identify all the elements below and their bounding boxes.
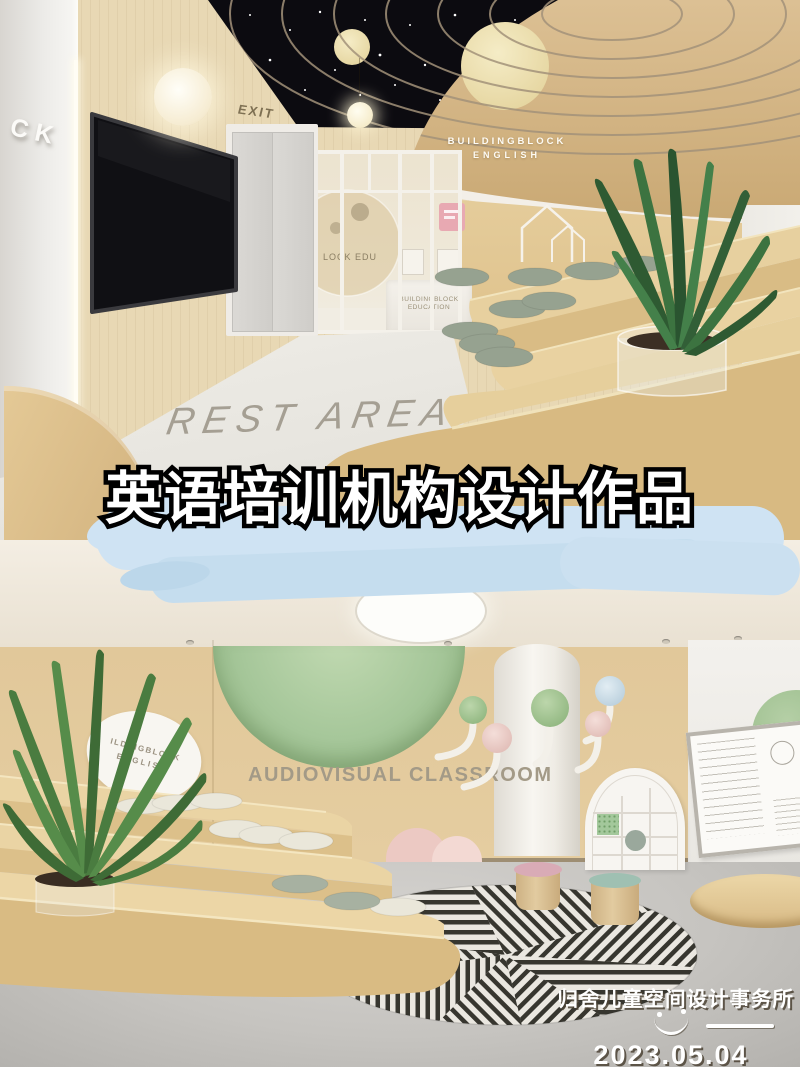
poster-title-text: 英语培训机构设计作品 <box>105 467 695 531</box>
rest-area-render: BUILDINGBLOCK ENGLISH LOCK EDU BUILDINGB… <box>0 0 800 540</box>
stool-top <box>514 862 562 877</box>
smiley-eye <box>681 1009 686 1014</box>
smiley-icon <box>654 1018 688 1035</box>
tiered-seating-and-plant <box>0 0 800 540</box>
studio-name: 归舍儿童空间设计事务所 <box>548 982 794 1012</box>
cloud-brush <box>559 536 800 596</box>
stool-teal <box>591 881 639 925</box>
design-poster: BUILDINGBLOCK ENGLISH LOCK EDU BUILDINGB… <box>0 0 800 1067</box>
watermark-divider <box>706 1024 774 1028</box>
stool-top <box>589 873 641 888</box>
studio-watermark: 归舍儿童空间设计事务所 2023.05.04 <box>548 982 794 1067</box>
smiley-eye <box>657 1012 662 1017</box>
watermark-date: 2023.05.04 <box>548 1040 794 1067</box>
poster-title: 英语培训机构设计作品 英语培训机构设计作品 <box>105 468 695 531</box>
house-outline-decor <box>522 206 584 262</box>
stool-pink <box>516 870 560 910</box>
